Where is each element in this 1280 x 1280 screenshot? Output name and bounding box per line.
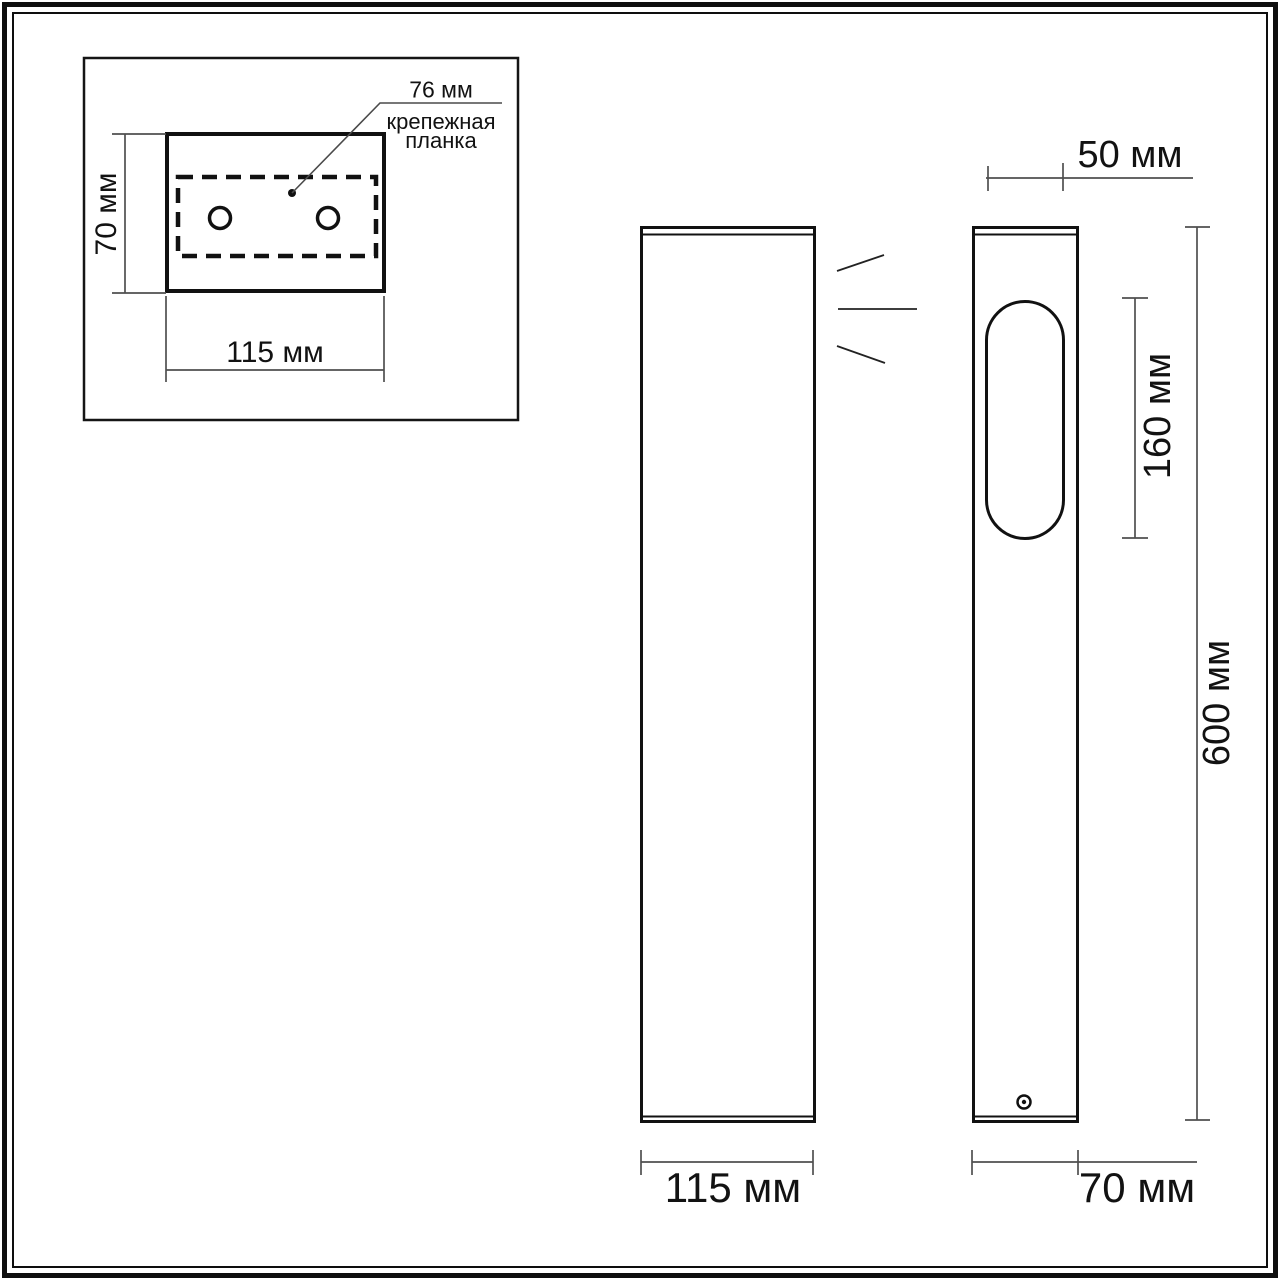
light-ray-lower — [837, 346, 885, 363]
window-height-label: 160 мм — [1139, 353, 1177, 479]
side-top-width-label: 50 мм — [1077, 136, 1182, 174]
mounting-hole-right — [318, 208, 339, 229]
screw-inner — [1022, 1100, 1026, 1104]
overall-height-label: 600 мм — [1198, 640, 1236, 766]
mounting-plate-dashed-outline — [178, 177, 376, 256]
inset-width-label: 115 мм — [226, 338, 323, 368]
hole-spacing-label: 76 мм — [409, 79, 473, 102]
mounting-plate — [167, 134, 384, 291]
drawing-linework — [0, 0, 1280, 1280]
side-view-body — [974, 228, 1078, 1122]
front-width-label: 115 мм — [665, 1167, 801, 1209]
light-ray-upper — [837, 255, 884, 271]
side-width-label: 70 мм — [1079, 1167, 1195, 1209]
mounting-hole-left — [210, 208, 231, 229]
front-view-body — [642, 228, 815, 1122]
light-rays — [837, 255, 917, 363]
mounting-plate-label: крепежная планка — [375, 112, 507, 150]
inset-height-label: 70 мм — [92, 173, 122, 256]
lamp-window — [987, 302, 1064, 539]
technical-drawing: 76 мм крепежная планка 70 мм 115 мм 50 м… — [0, 0, 1280, 1280]
